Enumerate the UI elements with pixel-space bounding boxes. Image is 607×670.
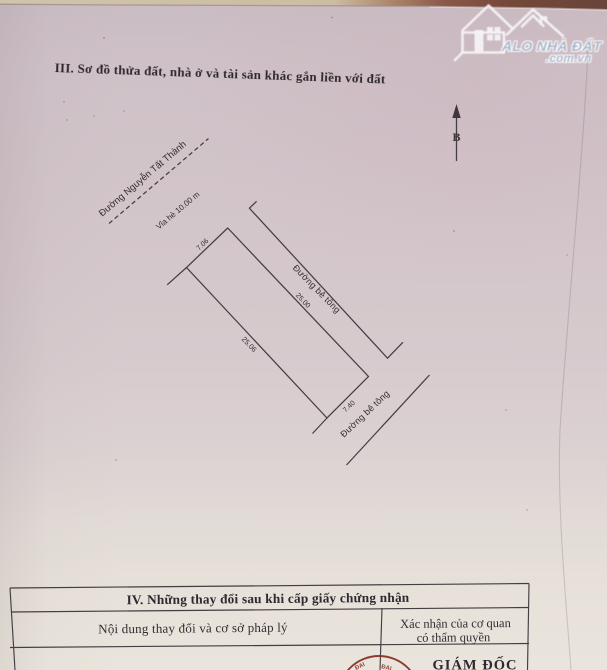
svg-text:Đường bê tông: Đường bê tông	[291, 263, 343, 315]
svg-text:GIÁM ĐỐC: GIÁM ĐỐC	[433, 656, 518, 670]
svg-text:Vỉa hè 10.00 m: Vỉa hè 10.00 m	[154, 190, 201, 232]
svg-text:Xác nhận của cơ quan: Xác nhận của cơ quan	[400, 616, 512, 631]
svg-text:ĐẠI: ĐẠI	[381, 664, 393, 670]
svg-text:B: B	[452, 130, 460, 144]
svg-text:7.40: 7.40	[342, 400, 357, 414]
svg-text:có thẩm quyền: có thẩm quyền	[417, 630, 491, 645]
svg-text:7.06: 7.06	[196, 238, 211, 253]
svg-text:IV. Những thay đổi sau khi cấp: IV. Những thay đổi sau khi cấp giấy chứn…	[126, 590, 409, 607]
svg-text:25.06: 25.06	[240, 335, 259, 354]
svg-text:Nội dung thay đổi và cơ sở phá: Nội dung thay đổi và cơ sở pháp lý	[98, 620, 288, 637]
